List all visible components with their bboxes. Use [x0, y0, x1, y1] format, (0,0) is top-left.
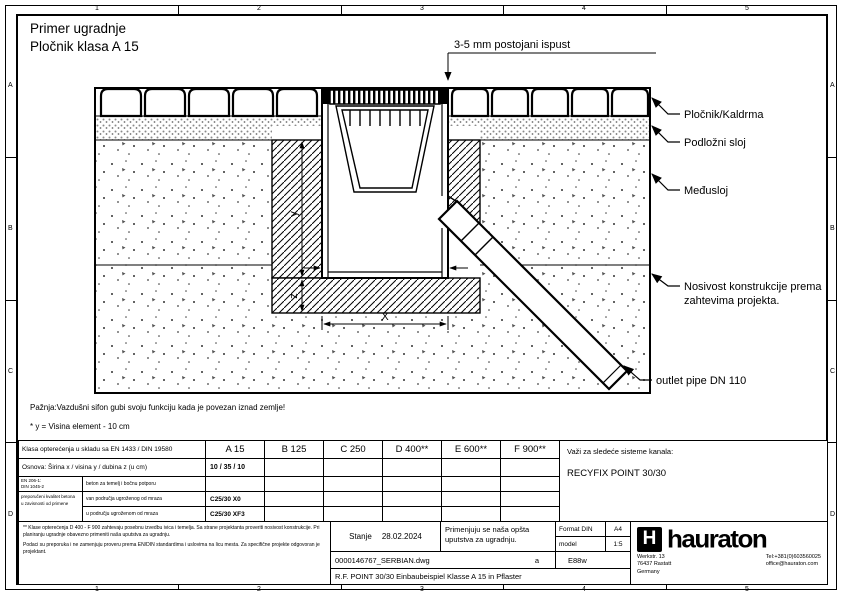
- ruler-label-top-5: 5: [745, 5, 749, 13]
- company-phone: Tel:+381(0)603560025: [766, 554, 821, 561]
- scale-label: model: [556, 537, 606, 551]
- ruler-tick: [5, 300, 16, 301]
- drawing-title-cell: R.F. POINT 30/30 Einbaubeispiel Klasse A…: [330, 568, 631, 585]
- company-contact: Werkstr. 13 76437 Rastatt Germany Tel:+3…: [637, 554, 821, 576]
- company-cell: H hauraton Werkstr. 13 76437 Rastatt Ger…: [630, 521, 828, 585]
- concrete-row1-label-cell: beton za temelj i bočnu potporu: [82, 476, 206, 492]
- ruler-label-right-a: A: [830, 82, 835, 90]
- systems-value: RECYFIX POINT 30/30: [567, 468, 820, 479]
- ruler-tick: [341, 5, 342, 14]
- base-dimensions-value-cell: 10 / 35 / 10: [205, 458, 265, 477]
- ruler-label-right-d: D: [830, 511, 835, 519]
- class-b125-cell: B 125: [264, 440, 324, 459]
- company-address-line3: Germany: [637, 569, 671, 576]
- gap-dimension-text: 3-5 mm postojani ispust: [454, 39, 570, 51]
- class-f900-cell: F 900**: [500, 440, 560, 459]
- ruler-label-right-c: C: [830, 368, 835, 376]
- ruler-label-bottom-2: 2: [257, 586, 261, 594]
- format-label: Format DIN: [556, 522, 606, 536]
- drain-grating: [330, 90, 440, 104]
- company-address: Werkstr. 13 76437 Rastatt Germany: [637, 554, 671, 576]
- ruler-label-left-d: D: [8, 511, 13, 519]
- concrete-row2-label-cell: van područja ugroženog od mraza: [82, 491, 206, 507]
- ruler-label-right-b: B: [830, 225, 835, 233]
- systems-label: Važi za sledeće sisteme kanala:: [567, 447, 820, 456]
- scale-value: 1:5: [606, 537, 630, 551]
- ruler-label-top-1: 1: [95, 5, 99, 13]
- ruler-tick: [503, 585, 504, 590]
- systems-cell: Važi za sledeće sisteme kanala: RECYFIX …: [559, 440, 828, 522]
- company-address-line2: 76437 Rastatt: [637, 561, 671, 568]
- small-print-cell: ** Klase opterećenja D 400 - F 900 zahte…: [18, 521, 331, 585]
- callout-bearing-line1: Nosivost konstrukcije prema: [684, 281, 822, 293]
- ruler-label-top-3: 3: [420, 5, 424, 13]
- concrete-row3-label-cell: u području ugroženom od mraza: [82, 506, 206, 522]
- company-address-line1: Werkstr. 13: [637, 554, 671, 561]
- concrete-quality-line2: u zavisnosti od primene: [21, 501, 80, 508]
- class-a15-cell: A 15: [205, 440, 265, 459]
- file-revision: a: [535, 556, 555, 565]
- ruler-label-bottom-3: 3: [420, 586, 424, 594]
- dimension-z-label: z: [288, 293, 300, 299]
- callout-bedding: Podložni sloj: [684, 137, 746, 149]
- callout-interlayer: Međusloj: [684, 185, 728, 197]
- concrete-quality-line1: preporučeni kvalitet betona: [21, 494, 80, 501]
- callout-outlet-pipe: outlet pipe DN 110: [656, 375, 746, 387]
- callout-bearing-line2: zahtevima projekta.: [684, 295, 779, 307]
- paver-blocks-left: [101, 89, 317, 116]
- paver-blocks-right: [452, 89, 648, 116]
- file-name-cell: 0000146767_SERBIAN.dwg a: [330, 551, 556, 569]
- load-class-label-cell: Klasa opterećenja u skladu sa EN 1433 / …: [18, 440, 206, 459]
- ruler-label-top-2: 2: [257, 5, 261, 13]
- ruler-tick: [341, 585, 342, 590]
- ruler-tick: [503, 5, 504, 14]
- height-note: * y = Visina element - 10 cm: [30, 422, 130, 431]
- concrete-standard-cell: EN 206-1: DIN 1045-2: [18, 476, 83, 492]
- file-name: 0000146767_SERBIAN.dwg: [335, 556, 535, 565]
- file-code-cell: E88w: [555, 551, 631, 569]
- concrete-quality-label-cell: preporučeni kvalitet betona u zavisnosti…: [18, 491, 83, 522]
- gap-dimension-callout: 3-5 mm postojani ispust: [448, 39, 656, 80]
- ruler-tick: [178, 585, 179, 590]
- instructions-cell: Primenjuju se naša opšta uputstva za ugr…: [440, 521, 556, 552]
- company-logo: H hauraton: [637, 526, 821, 552]
- status-value: 28.02.2024: [382, 532, 422, 541]
- warning-note: Pažnja:Vazdušni sifon gubi svoju funkcij…: [30, 403, 285, 412]
- ruler-tick: [828, 300, 837, 301]
- section-drawing-svg: 3-5 mm postojani ispust y z X: [18, 28, 826, 436]
- class-d400-cell: D 400**: [382, 440, 442, 459]
- ruler-tick: [666, 5, 667, 14]
- format-value: A4: [606, 522, 630, 536]
- empty-dimension-cells: [264, 458, 560, 477]
- hauraton-wordmark: hauraton: [667, 527, 766, 552]
- callout-paving: Pločnik/Kaldrma: [684, 109, 764, 121]
- base-dimensions-label-cell: Osnova: Širina x / visina y / dubina z (…: [18, 458, 206, 477]
- ruler-label-bottom-4: 4: [582, 586, 586, 594]
- ruler-label-bottom-5: 5: [745, 586, 749, 594]
- ruler-label-top-4: 4: [582, 5, 586, 13]
- small-print-paragraph-1: ** Klase opterećenja D 400 - F 900 zahte…: [23, 525, 326, 538]
- dimension-x-label: X: [381, 311, 389, 323]
- scale-cell: model 1:5: [555, 536, 631, 552]
- ruler-tick: [178, 5, 179, 14]
- ruler-tick: [828, 157, 837, 158]
- empty-concrete-cells: [264, 476, 560, 522]
- company-phone-email: Tel:+381(0)603560025 office@hauraton.com: [766, 554, 821, 576]
- class-c250-cell: C 250: [323, 440, 383, 459]
- ruler-tick: [666, 585, 667, 590]
- ruler-label-left-c: C: [8, 368, 13, 376]
- class-e600-cell: E 600**: [441, 440, 501, 459]
- ruler-label-left-b: B: [8, 225, 13, 233]
- ruler-tick: [828, 442, 837, 443]
- format-cell: Format DIN A4: [555, 521, 631, 537]
- concrete-standard-line2: DIN 1045-2: [21, 484, 80, 490]
- ruler-label-bottom-1: 1: [95, 586, 99, 594]
- concrete-row2-value-cell: C25/30 X0: [205, 491, 265, 507]
- concrete-row1-value-cell: [205, 476, 265, 492]
- drawing-sheet: 1 2 3 4 5 1 2 3 4 5 A B C D A B C D Prim…: [0, 0, 842, 595]
- company-email: office@hauraton.com: [766, 561, 821, 568]
- ruler-tick: [5, 157, 16, 158]
- dimension-y-label: y: [288, 211, 300, 217]
- concrete-row3-value-cell: C25/30 XF3: [205, 506, 265, 522]
- hauraton-logo-icon: H: [637, 527, 662, 552]
- point-drain-body: [322, 90, 448, 278]
- ruler-tick: [5, 442, 16, 443]
- ruler-label-left-a: A: [8, 82, 13, 90]
- status-cell: Stanje 28.02.2024: [330, 521, 441, 552]
- status-label: Stanje: [349, 532, 372, 541]
- small-print-paragraph-2: Podaci su preporuka i ne zamenjuju prove…: [23, 542, 326, 555]
